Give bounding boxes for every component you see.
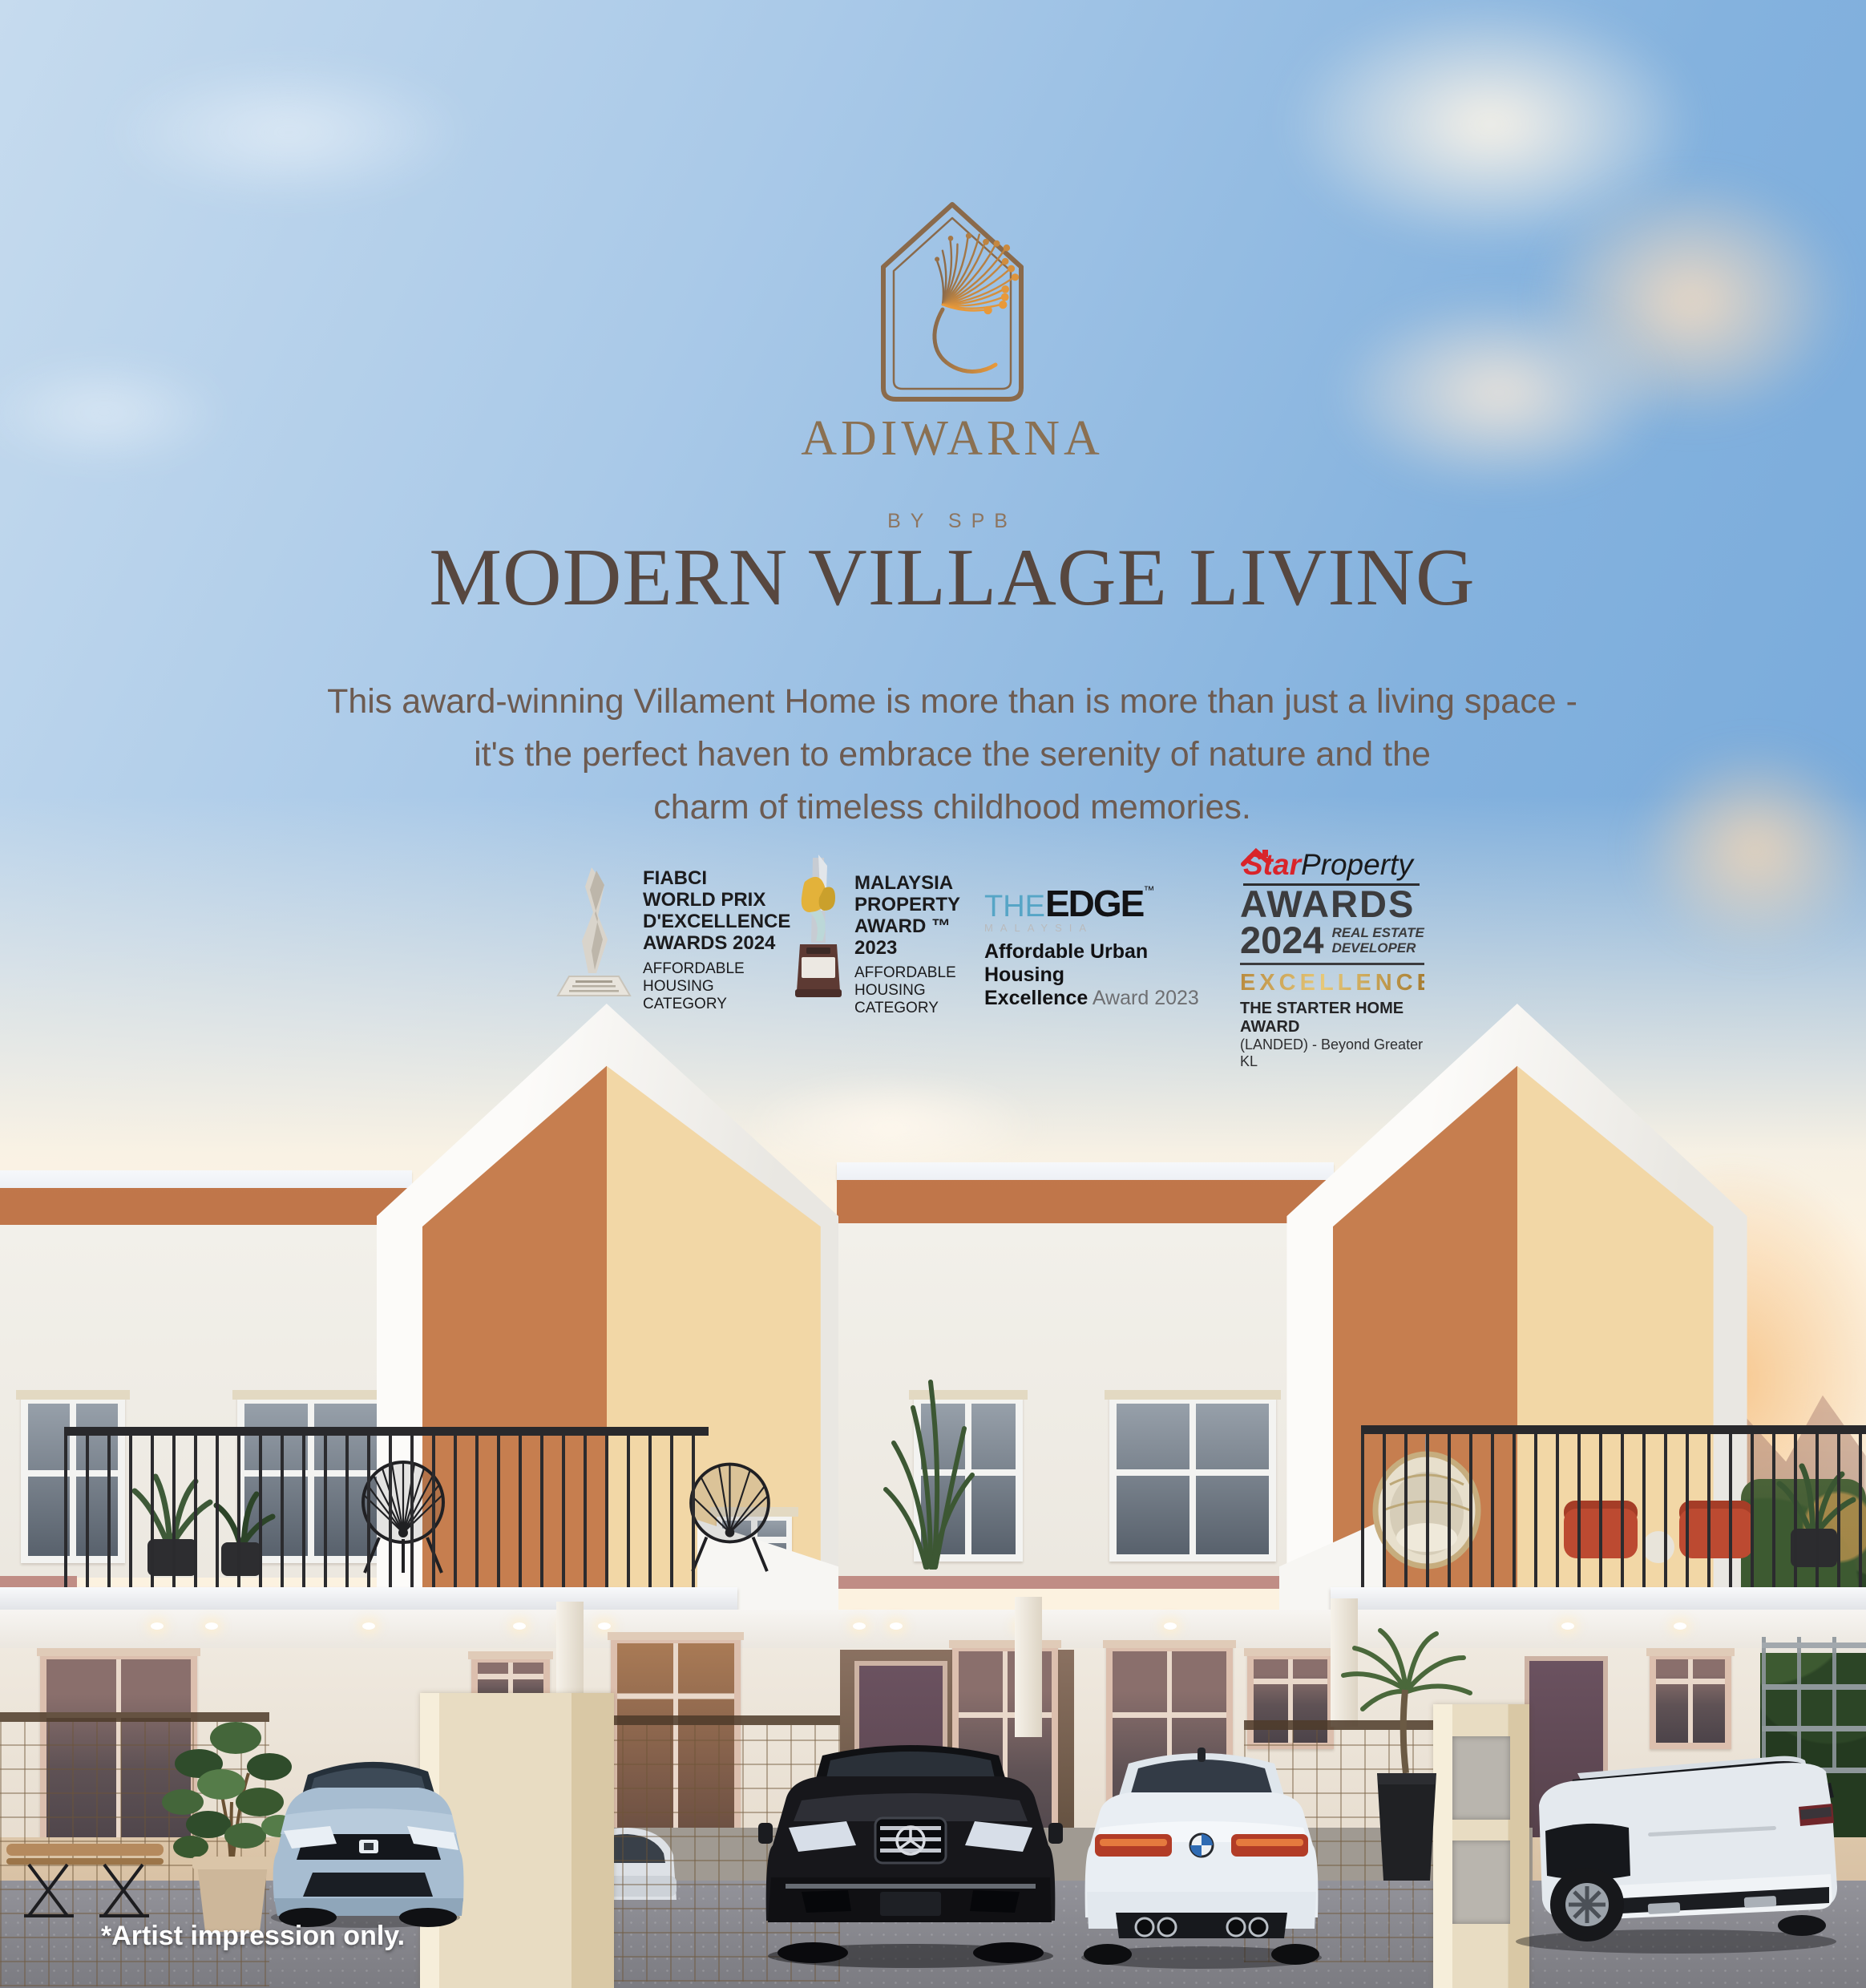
edge-excellence: Excellence (984, 987, 1088, 1009)
ceiling-light (853, 1622, 866, 1630)
page-title: MODERN VILLAGE LIVING (38, 531, 1866, 624)
award-title-line: AWARDS 2024 (643, 932, 795, 954)
award-year: 2024 (1240, 923, 1324, 958)
developer-label: REAL ESTATE DEVELOPER (1332, 925, 1424, 956)
award-category-line: AFFORDABLE (854, 964, 983, 982)
ceiling-light (890, 1622, 903, 1630)
award-title-line: AWARD ™ (854, 915, 983, 937)
mercedes-car (753, 1720, 1068, 1970)
artist-impression-disclaimer: *Artist impression only. (101, 1921, 405, 1952)
ceiling-light (598, 1622, 611, 1630)
parapet-mid (837, 1162, 1334, 1180)
upper-window (1109, 1396, 1276, 1562)
award-title-line: Affordable Urban Housing (984, 940, 1217, 987)
award-title-line: D'EXCELLENCE (643, 911, 795, 932)
award-title-line: AWARDS (1240, 886, 1424, 923)
award-malaysia-property: MALAYSIA PROPERTY AWARD ™ 2023 AFFORDABL… (854, 872, 983, 1017)
balcony-railing-right (1361, 1425, 1866, 1602)
cloud (1266, 257, 1731, 529)
porch-ceiling (0, 1610, 1866, 1653)
adiwarna-house-logo-icon (872, 199, 1032, 407)
award-the-edge: THEEDGE™ MALAYSIA Affordable Urban Housi… (984, 882, 1217, 1010)
property-word: Property (1301, 848, 1413, 881)
award-title-line: 2023 (854, 937, 983, 959)
award-year-row: 2024 REAL ESTATE DEVELOPER (1240, 923, 1424, 958)
award-detail: (LANDED) - Beyond Greater KL (1240, 1036, 1424, 1070)
award-title-line: PROPERTY (854, 894, 983, 915)
award-title-line: WORLD PRIX (643, 889, 795, 911)
porch-column (1015, 1597, 1042, 1737)
developer-line: REAL ESTATE (1332, 925, 1424, 940)
award-tier: EXCELLENCE (1240, 970, 1424, 996)
ceiling-light (1674, 1622, 1686, 1630)
edge-award-year: Award 2023 (1088, 987, 1199, 1009)
ceiling-light (205, 1622, 218, 1630)
ceiling-light (1164, 1622, 1177, 1630)
range-rover-car (1504, 1703, 1848, 1956)
developer-line: DEVELOPER (1332, 940, 1416, 956)
grass-plant (878, 1355, 982, 1571)
award-category-line: HOUSING (854, 982, 983, 1000)
balcony-railing-left (64, 1427, 709, 1602)
award-category-line: HOUSING (643, 978, 795, 996)
award-category-line: CATEGORY (854, 1000, 983, 1017)
starproperty-roof-icon (1240, 847, 1275, 867)
award-fiabci: FIABCI WORLD PRIX D'EXCELLENCE AWARDS 20… (643, 867, 795, 1013)
ceiling-light (362, 1622, 375, 1630)
edge-tm: ™ (1143, 883, 1154, 896)
terracotta-band-mid (837, 1180, 1334, 1223)
cloud (32, 32, 545, 232)
ceiling-light (513, 1622, 526, 1630)
mpa-trophy-icon (789, 855, 848, 1004)
brand-byline: BY SPB (38, 510, 1866, 533)
ceiling-light (1561, 1622, 1574, 1630)
award-star-property: StarProperty AWARDS 2024 REAL ESTATE DEV… (1240, 848, 1424, 1070)
tagline-line: This award-winning Villament Home is mor… (38, 675, 1866, 728)
brand-name: ADIWARNA (38, 410, 1866, 467)
award-category-line: AFFORDABLE (643, 960, 795, 978)
terracotta-band-left (0, 1188, 409, 1225)
award-title-line: MALAYSIA (854, 872, 983, 894)
balcony-slab-right (1331, 1587, 1866, 1610)
bmw-car (1071, 1731, 1332, 1972)
palm-plant (1316, 1613, 1500, 1898)
balcony-slab-left (0, 1587, 737, 1610)
parapet-left (0, 1170, 412, 1188)
award-title-line: FIABCI (643, 867, 795, 889)
divider (1240, 963, 1424, 965)
poster-canvas: ADIWARNA BY SPB MODERN VILLAGE LIVING Th… (0, 0, 1866, 1988)
ceiling-light (151, 1622, 164, 1630)
award-name: THE STARTER HOME AWARD (1240, 1000, 1424, 1036)
edge-the: THE (984, 890, 1045, 923)
award-category-line: CATEGORY (643, 996, 795, 1013)
the-edge-logo: THEEDGE™ (984, 882, 1217, 925)
fiabci-trophy-icon (551, 863, 636, 1004)
award-title-line: Excellence Award 2023 (984, 987, 1217, 1010)
tagline-line: charm of timeless childhood memories. (38, 781, 1866, 834)
edge-wordmark: EDGE (1045, 883, 1143, 924)
honda-civic-car (261, 1738, 470, 1930)
tagline-line: it's the perfect haven to embrace the se… (38, 728, 1866, 781)
